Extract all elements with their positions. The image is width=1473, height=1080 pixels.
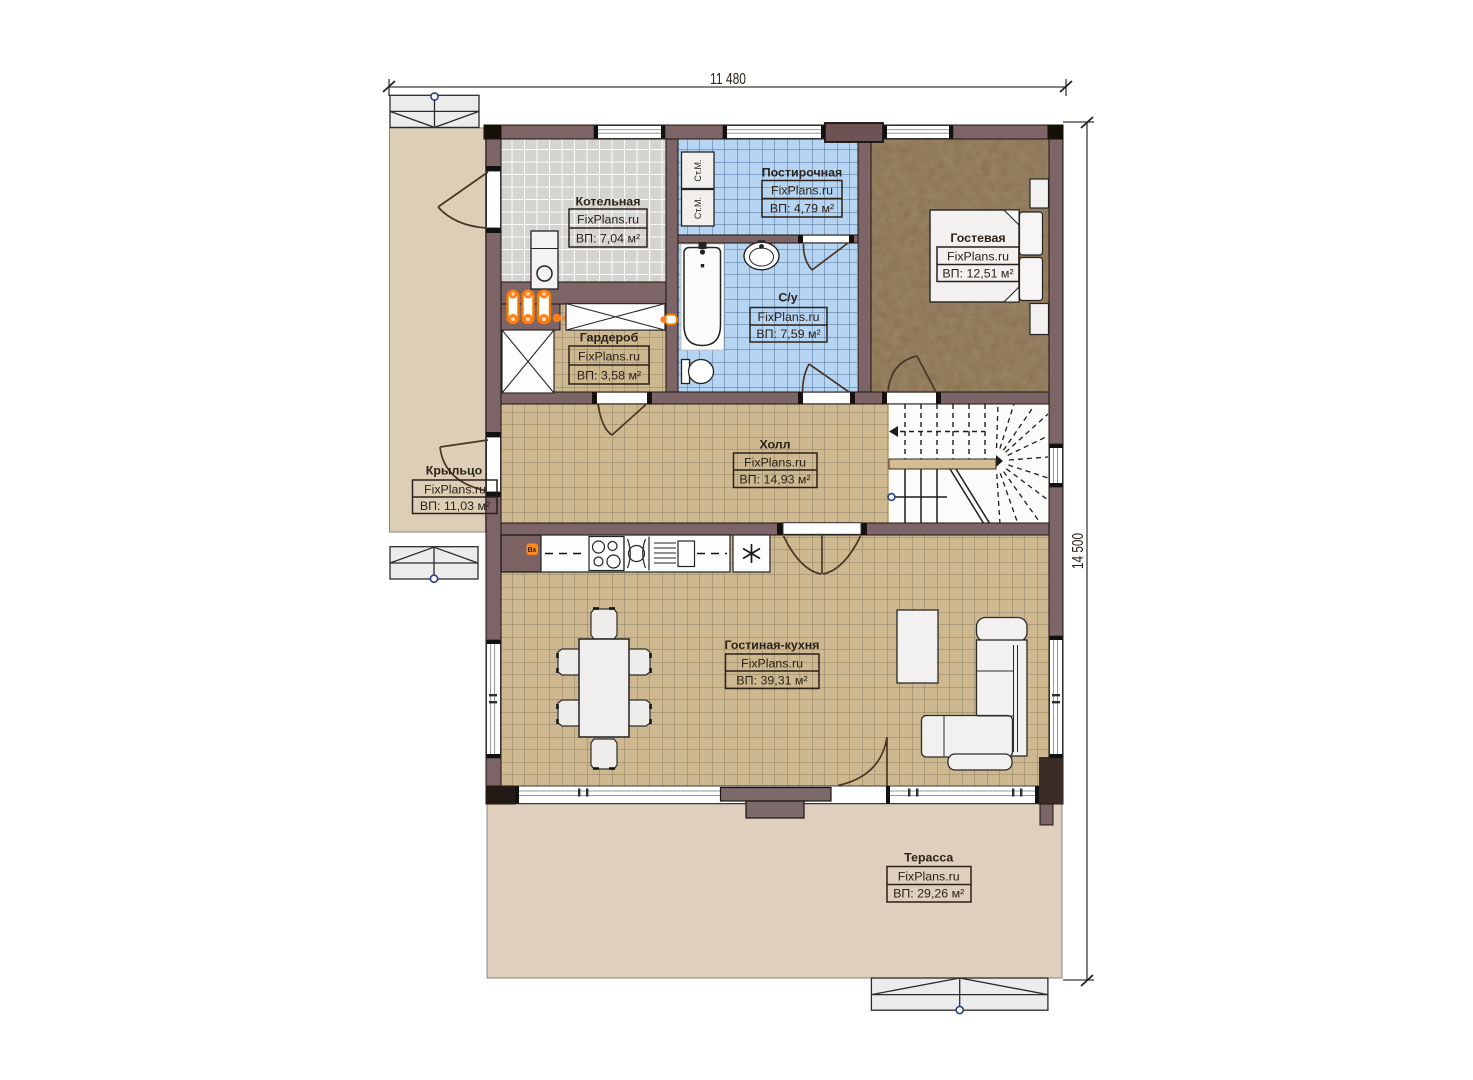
svg-text:FixPlans.ru: FixPlans.ru xyxy=(947,250,1009,264)
svg-text:Крыльцо: Крыльцо xyxy=(426,464,483,478)
svg-text:ВП: 29,26 м²: ВП: 29,26 м² xyxy=(893,887,964,901)
svg-text:FixPlans.ru: FixPlans.ru xyxy=(758,310,820,324)
svg-text:Гостевая: Гостевая xyxy=(950,231,1005,245)
svg-text:Котельная: Котельная xyxy=(576,195,641,209)
svg-text:Терасса: Терасса xyxy=(904,851,953,865)
svg-text:Ст.М.: Ст.М. xyxy=(693,197,703,219)
svg-text:С/у: С/у xyxy=(778,291,797,305)
svg-text:14 500: 14 500 xyxy=(1070,533,1087,569)
svg-text:ВП: 3,58 м²: ВП: 3,58 м² xyxy=(577,369,641,383)
svg-text:FixPlans.ru: FixPlans.ru xyxy=(744,456,806,470)
svg-text:Холл: Холл xyxy=(759,438,790,452)
svg-text:FixPlans.ru: FixPlans.ru xyxy=(424,483,486,497)
svg-text:ВП: 11,03 м²: ВП: 11,03 м² xyxy=(420,499,490,513)
svg-text:Гардероб: Гардероб xyxy=(580,331,639,345)
svg-text:FixPlans.ru: FixPlans.ru xyxy=(578,350,640,364)
svg-text:ВП: 14,93 м²: ВП: 14,93 м² xyxy=(739,473,810,487)
svg-text:11 480: 11 480 xyxy=(710,71,746,88)
svg-text:ВП: 7,59 м²: ВП: 7,59 м² xyxy=(756,327,820,341)
svg-text:ВП: 12,51 м²: ВП: 12,51 м² xyxy=(942,267,1013,281)
svg-text:ВП: 4,79 м²: ВП: 4,79 м² xyxy=(770,202,834,216)
svg-text:FixPlans.ru: FixPlans.ru xyxy=(741,657,803,671)
svg-text:Вх: Вх xyxy=(528,547,537,554)
svg-text:FixPlans.ru: FixPlans.ru xyxy=(771,184,833,198)
svg-text:Гостиная-кухня: Гостиная-кухня xyxy=(725,638,820,652)
svg-text:FixPlans.ru: FixPlans.ru xyxy=(898,870,960,884)
svg-text:ВП: 7,04 м²: ВП: 7,04 м² xyxy=(576,232,640,246)
svg-text:Постирочная: Постирочная xyxy=(762,166,843,180)
svg-text:ВП: 39,31 м²: ВП: 39,31 м² xyxy=(736,674,807,688)
svg-text:FixPlans.ru: FixPlans.ru xyxy=(577,213,639,227)
svg-text:Ст.М.: Ст.М. xyxy=(693,159,703,181)
